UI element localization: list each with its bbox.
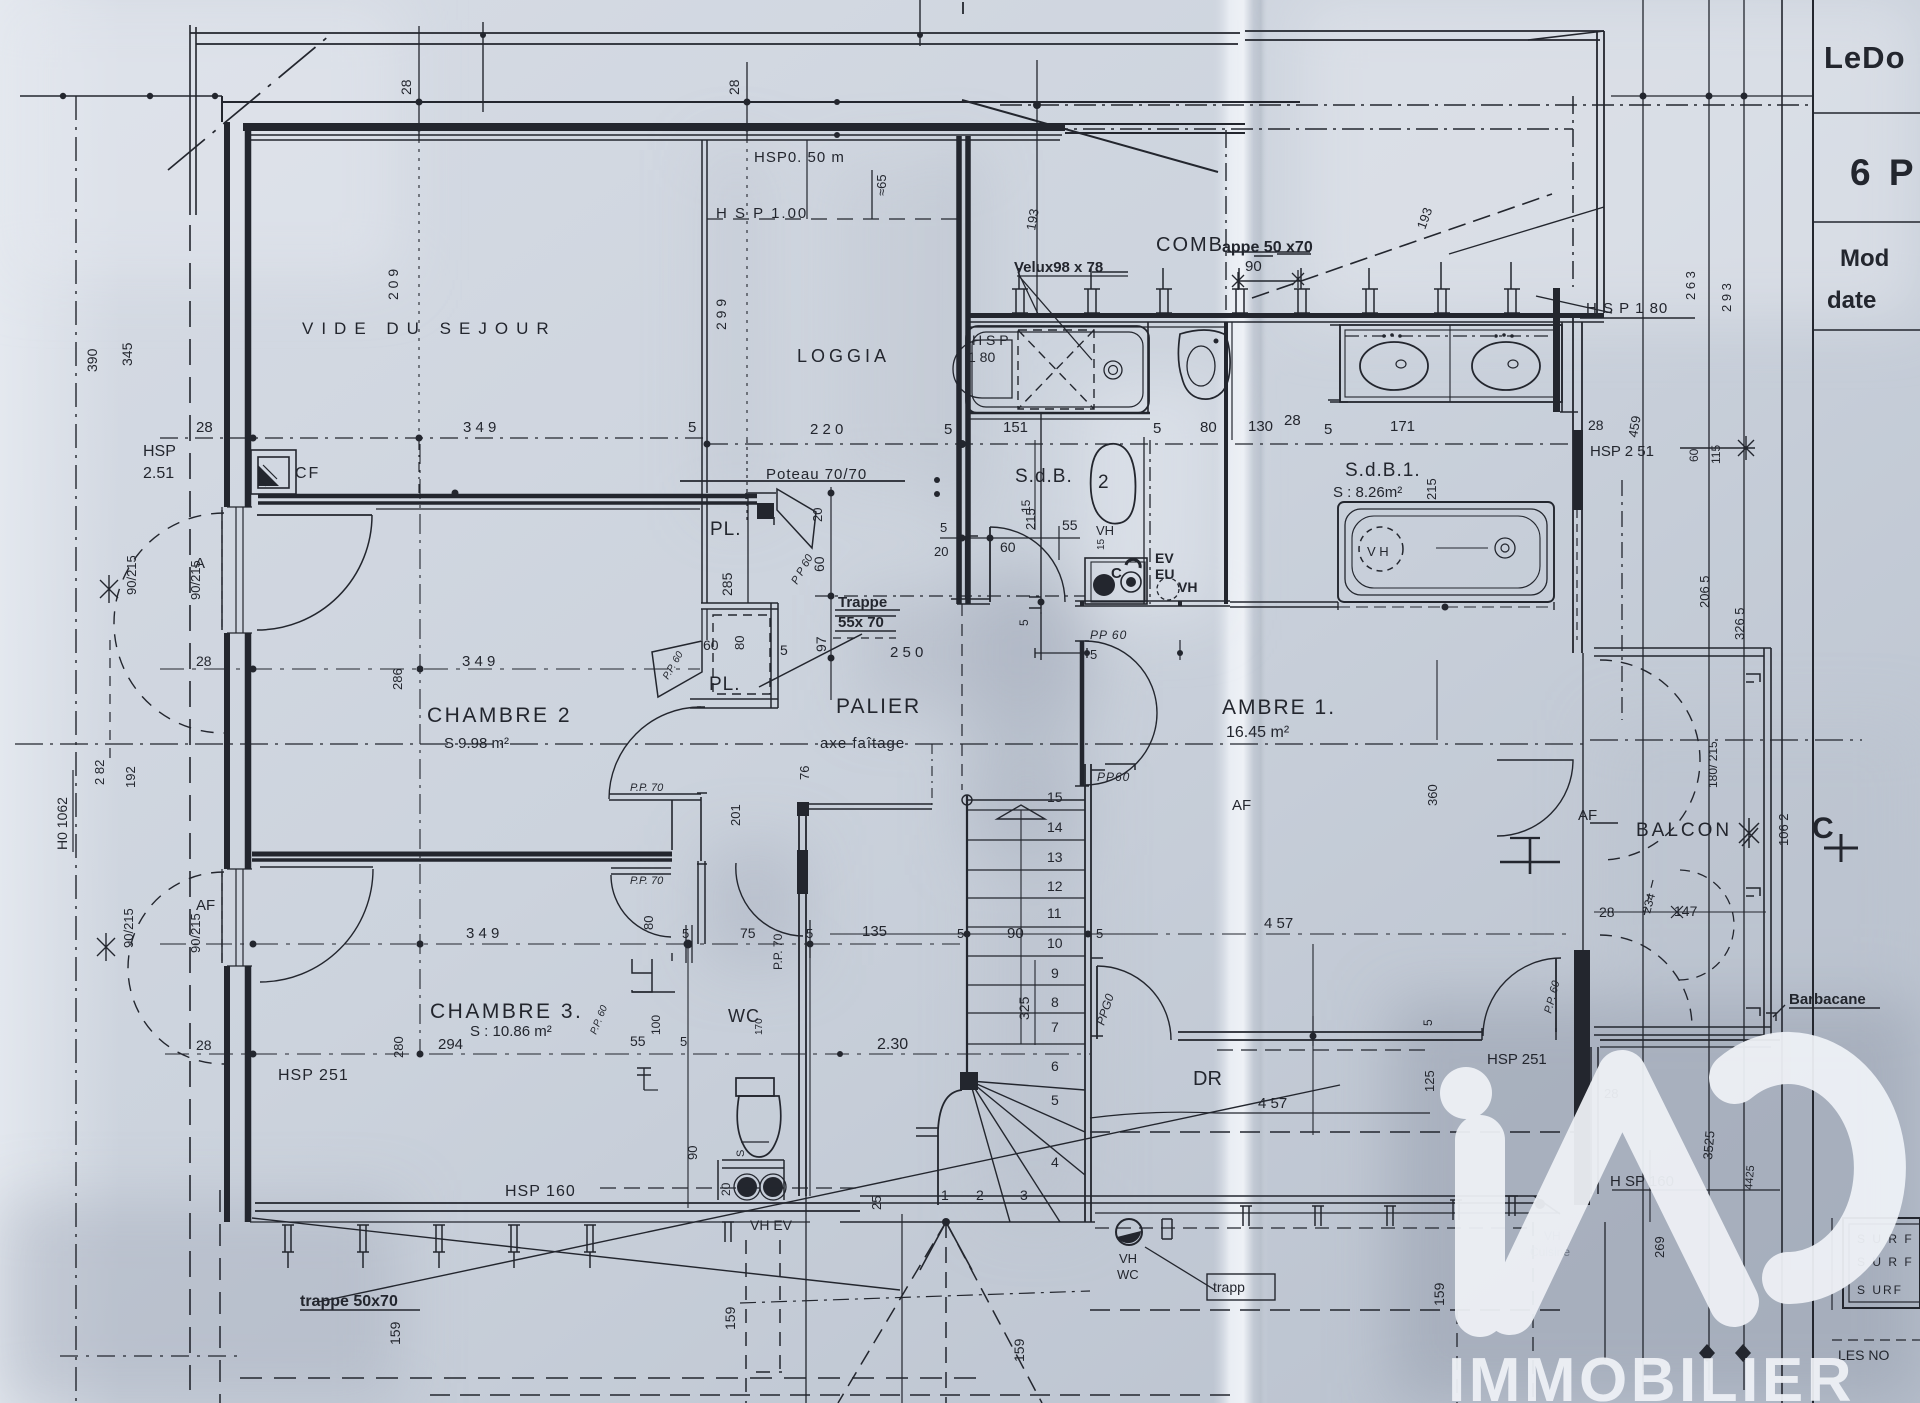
svg-text:28: 28 [398, 79, 414, 95]
svg-text:106 2: 106 2 [1776, 813, 1791, 846]
svg-text:5: 5 [1153, 420, 1161, 437]
svg-text:S 9.98 m²: S 9.98 m² [444, 735, 509, 752]
svg-text:2 2 0: 2 2 0 [810, 421, 843, 438]
svg-text:AF: AF [196, 897, 215, 914]
svg-text:20: 20 [719, 1182, 733, 1196]
svg-text:135: 135 [862, 923, 887, 940]
svg-text:HSP 160: HSP 160 [505, 1183, 576, 1200]
svg-text:≈65: ≈65 [874, 174, 889, 196]
svg-text:2.51: 2.51 [143, 465, 174, 482]
svg-text:28: 28 [726, 79, 742, 95]
svg-text:EV: EV [1155, 550, 1174, 566]
svg-text:2 5 0: 2 5 0 [890, 644, 923, 661]
svg-text:WC: WC [1117, 1267, 1139, 1282]
svg-text:VH: VH [1096, 523, 1114, 538]
svg-text:CF: CF [295, 465, 320, 482]
svg-text:S.d.B.1.: S.d.B.1. [1345, 460, 1421, 481]
svg-text:285: 285 [719, 572, 735, 596]
svg-text:Trappe: Trappe [838, 594, 887, 611]
svg-text:15: 15 [1096, 538, 1107, 550]
svg-text:1 80: 1 80 [968, 349, 995, 365]
svg-text:159: 159 [387, 1321, 403, 1345]
svg-text:60: 60 [703, 637, 719, 653]
svg-text:HSP 251: HSP 251 [278, 1067, 349, 1084]
svg-text:2 6 3: 2 6 3 [1683, 271, 1698, 300]
svg-text:294: 294 [438, 1036, 463, 1053]
svg-text:CHAMBRE 3.: CHAMBRE 3. [430, 1000, 583, 1023]
svg-text:4 57: 4 57 [1264, 915, 1293, 932]
svg-text:VIDE DU SEJOUR: VIDE DU SEJOUR [302, 319, 557, 338]
svg-text:2 9 3: 2 9 3 [1719, 283, 1734, 312]
svg-text:5: 5 [680, 1034, 687, 1049]
svg-text:4425: 4425 [1743, 1165, 1757, 1190]
svg-text:P.P. 70: P.P. 70 [630, 875, 664, 887]
svg-text:trapp: trapp [1213, 1279, 1245, 1295]
svg-text:5: 5 [1051, 1092, 1059, 1108]
svg-text:PALIER: PALIER [836, 695, 921, 718]
svg-text:55: 55 [1062, 517, 1078, 533]
svg-text:206 5: 206 5 [1697, 575, 1712, 608]
svg-text:3: 3 [1020, 1187, 1028, 1203]
svg-text:H S P 1 80: H S P 1 80 [1586, 300, 1668, 317]
svg-text:80: 80 [732, 636, 747, 650]
svg-text:2 9 9: 2 9 9 [713, 299, 729, 330]
svg-text:AMBRE 1.: AMBRE 1. [1222, 696, 1336, 719]
svg-text:180/ 215: 180/ 215 [1706, 741, 1720, 788]
svg-text:75: 75 [740, 925, 756, 941]
svg-text:6: 6 [1051, 1058, 1059, 1074]
svg-text:8: 8 [1051, 994, 1059, 1010]
svg-text:trappe 50x70: trappe 50x70 [300, 1293, 398, 1310]
svg-text:EU: EU [1155, 566, 1174, 582]
svg-text:28: 28 [1588, 417, 1604, 433]
svg-text:5: 5 [1324, 421, 1332, 438]
svg-text:2 82: 2 82 [92, 760, 107, 785]
svg-text:215: 215 [1424, 478, 1439, 500]
svg-text:80: 80 [641, 916, 656, 930]
svg-text:28: 28 [1284, 412, 1301, 429]
svg-text:16.45 m²: 16.45 m² [1226, 724, 1290, 741]
svg-text:V H: V H [1367, 544, 1389, 559]
svg-text:11: 11 [1047, 905, 1062, 921]
svg-text:90/215: 90/215 [121, 908, 136, 948]
svg-text:5: 5 [944, 421, 952, 438]
svg-text:171: 171 [1390, 418, 1415, 435]
svg-text:AF: AF [1232, 797, 1251, 814]
svg-text:VH: VH [1119, 1251, 1137, 1266]
svg-text:90/215: 90/215 [124, 555, 139, 595]
svg-text:159: 159 [1011, 1338, 1027, 1362]
svg-text:9: 9 [1051, 965, 1059, 981]
svg-text:IMMOBILIER: IMMOBILIER [1448, 1346, 1855, 1403]
svg-text:C: C [1812, 812, 1834, 845]
svg-text:LeDo: LeDo [1824, 40, 1906, 75]
svg-text:HSP 251: HSP 251 [1487, 1051, 1547, 1068]
svg-text:15: 15 [1047, 789, 1063, 805]
svg-text:S.d.B.: S.d.B. [1015, 466, 1073, 487]
svg-text:HSP 2 51: HSP 2 51 [1590, 443, 1654, 460]
svg-text:360: 360 [1425, 784, 1440, 806]
svg-text:325: 325 [1016, 996, 1032, 1020]
svg-text:DR: DR [1193, 1068, 1222, 1090]
svg-text:Poteau 70/70: Poteau 70/70 [766, 466, 867, 483]
svg-text:5: 5 [1090, 647, 1097, 662]
svg-text:147: 147 [1674, 903, 1698, 919]
svg-text:3 4 9: 3 4 9 [466, 925, 499, 942]
svg-text:4: 4 [1051, 1154, 1059, 1170]
svg-text:appe 50 x70: appe 50 x70 [1222, 239, 1313, 256]
svg-text:H S P: H S P [972, 332, 1009, 348]
svg-text:5: 5 [957, 926, 964, 941]
svg-text:COMB: COMB [1156, 234, 1224, 256]
svg-text:125: 125 [1422, 1070, 1437, 1092]
svg-text:3 4 9: 3 4 9 [463, 419, 496, 436]
svg-text:80: 80 [1200, 419, 1217, 436]
svg-text:130: 130 [1248, 418, 1273, 435]
svg-text:PP60: PP60 [1097, 770, 1130, 784]
svg-text:VH EV: VH EV [750, 1217, 793, 1233]
svg-text:269: 269 [1652, 1236, 1667, 1258]
svg-text:2.30: 2.30 [877, 1036, 908, 1053]
svg-text:date: date [1827, 287, 1876, 314]
svg-text:5: 5 [780, 642, 788, 658]
svg-text:A: A [195, 555, 205, 572]
svg-text:15: 15 [1019, 499, 1033, 513]
svg-text:AF: AF [1578, 807, 1597, 824]
svg-text:76: 76 [797, 766, 812, 780]
svg-text:S : 8.26m²: S : 8.26m² [1333, 484, 1402, 501]
svg-text:5: 5 [688, 419, 696, 436]
svg-text:2 0 9: 2 0 9 [385, 269, 401, 300]
svg-text:BALCON: BALCON [1636, 820, 1732, 841]
svg-text:PP 60: PP 60 [1090, 628, 1127, 642]
svg-text:90: 90 [685, 1146, 700, 1160]
svg-text:3 4 9: 3 4 9 [462, 653, 495, 670]
svg-text:5: 5 [1017, 619, 1031, 626]
svg-text:Barbacane: Barbacane [1789, 991, 1866, 1008]
svg-text:90: 90 [1245, 258, 1262, 275]
svg-text:60: 60 [1000, 539, 1016, 555]
svg-text:5: 5 [940, 520, 947, 535]
svg-text:S : 10.86 m²: S : 10.86 m² [470, 1023, 552, 1040]
svg-text:H0 1062: H0 1062 [54, 797, 70, 850]
svg-text:159: 159 [1431, 1282, 1447, 1306]
svg-text:PL.: PL. [710, 519, 742, 540]
svg-text:201: 201 [728, 804, 743, 826]
svg-text:P.P. 70: P.P. 70 [630, 782, 664, 794]
svg-text:PL.: PL. [709, 674, 741, 695]
svg-text:20: 20 [934, 544, 948, 559]
svg-text:S: S [735, 1150, 747, 1157]
svg-text:390: 390 [84, 348, 100, 372]
svg-text:7: 7 [1051, 1019, 1059, 1035]
svg-text:28: 28 [196, 653, 212, 669]
svg-text:345: 345 [119, 342, 135, 366]
svg-text:HSP: HSP [143, 443, 176, 460]
svg-text:2: 2 [976, 1187, 984, 1203]
svg-text:90: 90 [1007, 925, 1024, 942]
svg-text:S URF: S URF [1857, 1283, 1903, 1297]
svg-text:Mod: Mod [1840, 245, 1889, 272]
svg-text:286: 286 [390, 668, 405, 690]
svg-text:CHAMBRE 2: CHAMBRE 2 [427, 704, 572, 727]
svg-text:159: 159 [722, 1306, 738, 1330]
svg-text:3525: 3525 [1700, 1130, 1717, 1160]
svg-text:5: 5 [682, 926, 689, 941]
svg-text:97: 97 [813, 636, 829, 652]
svg-text:LOGGIA: LOGGIA [797, 346, 890, 366]
svg-text:10: 10 [1047, 935, 1063, 951]
svg-text:C: C [1111, 565, 1122, 582]
svg-text:4 57: 4 57 [1258, 1095, 1287, 1112]
svg-text:326 5: 326 5 [1732, 607, 1747, 640]
svg-text:13: 13 [1047, 849, 1063, 865]
svg-text:170: 170 [754, 1018, 765, 1035]
svg-text:280: 280 [391, 1036, 406, 1058]
svg-text:60: 60 [1687, 448, 1701, 462]
svg-text:28: 28 [1599, 904, 1615, 920]
svg-text:14: 14 [1047, 819, 1063, 835]
svg-text:90/215: 90/215 [188, 913, 203, 953]
svg-text:28: 28 [196, 419, 213, 436]
svg-text:192: 192 [123, 766, 138, 788]
svg-text:axe faîtage: axe faîtage [820, 735, 905, 752]
svg-text:1: 1 [941, 1187, 949, 1203]
svg-text:28: 28 [196, 1037, 212, 1053]
svg-text:P.P. 70: P.P. 70 [771, 933, 785, 970]
svg-text:2: 2 [1098, 472, 1109, 493]
svg-text:Velux98 x 78: Velux98 x 78 [1014, 259, 1103, 276]
svg-text:55: 55 [630, 1033, 646, 1049]
svg-text:20: 20 [810, 508, 825, 522]
svg-text:12: 12 [1047, 878, 1063, 894]
svg-text:VH: VH [1178, 579, 1197, 595]
svg-text:H S P 1.00: H S P 1.00 [716, 205, 808, 222]
svg-text:100: 100 [649, 1015, 663, 1035]
svg-text:5: 5 [1421, 1019, 1435, 1026]
svg-text:6 P: 6 P [1850, 152, 1918, 193]
svg-text:25: 25 [869, 1196, 884, 1210]
svg-text:5: 5 [806, 926, 813, 941]
svg-text:151: 151 [1003, 419, 1028, 436]
svg-text:HSP0. 50 m: HSP0. 50 m [754, 149, 845, 166]
svg-text:55x 70: 55x 70 [838, 614, 884, 631]
svg-text:5: 5 [1096, 926, 1103, 941]
